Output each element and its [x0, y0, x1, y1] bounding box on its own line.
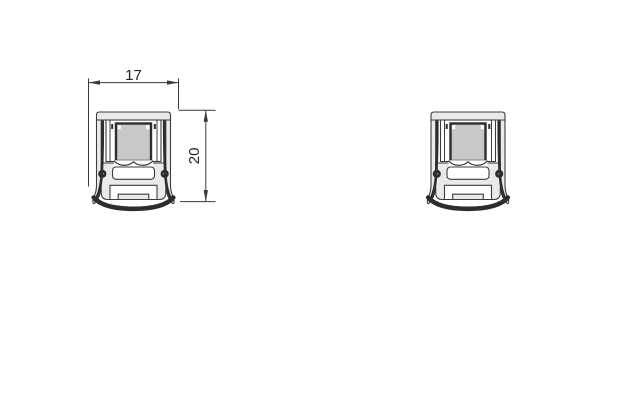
- technical-drawing-canvas: 17 20: [0, 0, 627, 403]
- seal-profile-drawing: 17 20: [0, 0, 627, 403]
- dim-width-label: 17: [125, 67, 142, 84]
- dimension-height: 20: [179, 110, 216, 201]
- profile-view-right: [427, 112, 508, 209]
- dim-width-arrow-right: [167, 80, 179, 84]
- dim-height-arrow-bottom: [204, 190, 208, 202]
- dim-height-arrow-top: [204, 110, 208, 122]
- profile-view-left: [93, 112, 174, 209]
- dim-height-label: 20: [186, 148, 203, 165]
- dim-width-arrow-left: [89, 80, 101, 84]
